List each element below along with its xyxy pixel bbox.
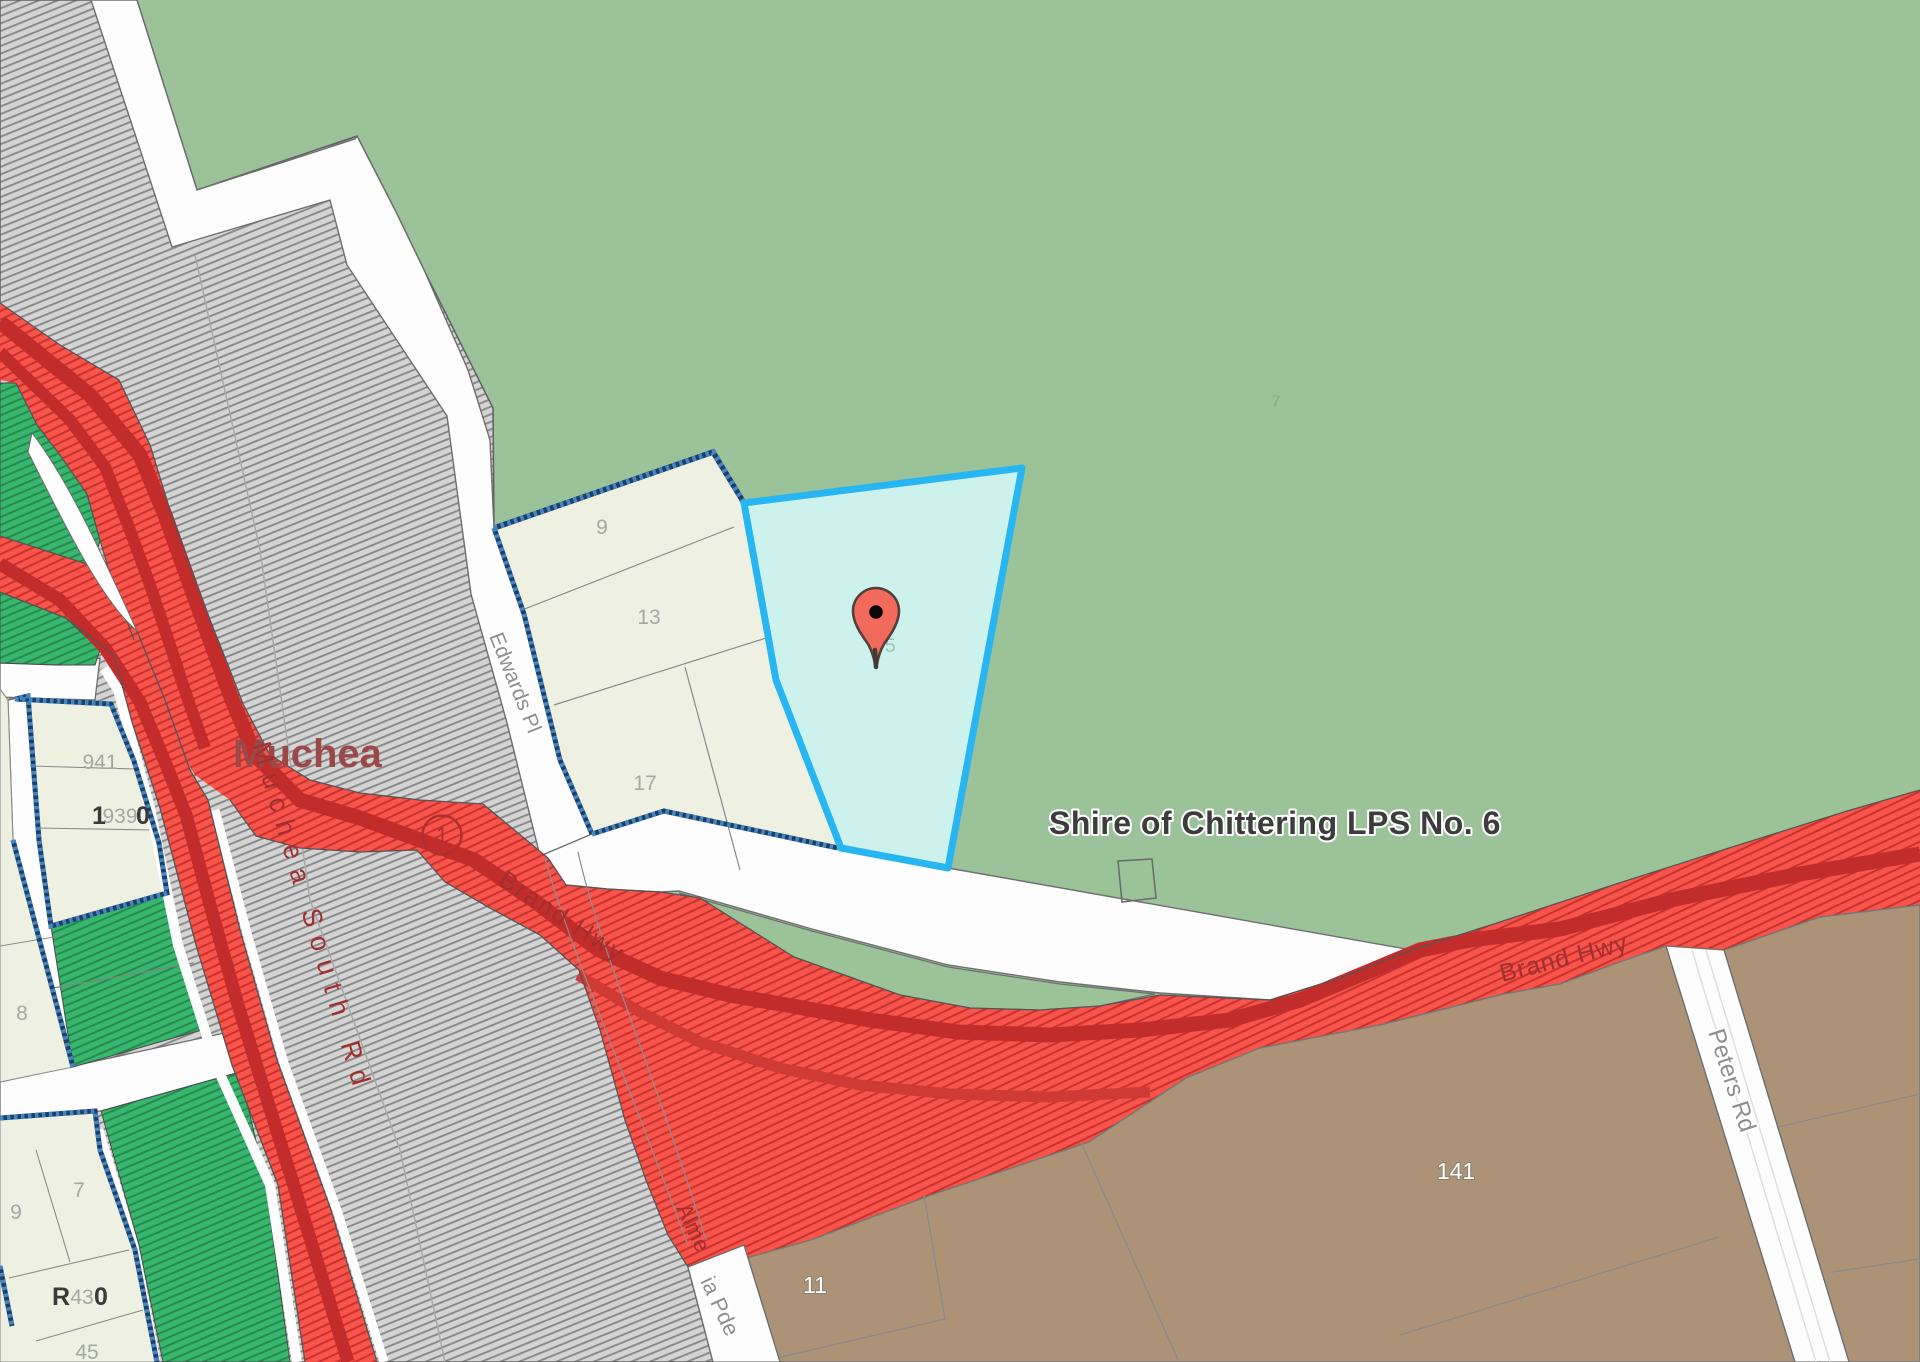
svg-text:8: 8	[16, 1002, 28, 1025]
svg-text:45: 45	[75, 1341, 98, 1362]
svg-text:9: 9	[596, 516, 608, 539]
svg-text:141: 141	[1437, 1158, 1475, 1184]
svg-text:Shire of Chittering LPS No. 6: Shire of Chittering LPS No. 6	[1049, 805, 1501, 841]
svg-text:17: 17	[633, 772, 656, 795]
svg-text:0: 0	[136, 802, 150, 830]
svg-text:43: 43	[70, 1286, 93, 1309]
svg-text:7: 7	[73, 1179, 85, 1202]
svg-text:R: R	[52, 1283, 70, 1311]
svg-text:1: 1	[92, 802, 106, 830]
svg-text:13: 13	[637, 606, 660, 629]
svg-text:7: 7	[1271, 392, 1280, 411]
svg-text:1: 1	[436, 823, 448, 848]
svg-text:9: 9	[10, 1201, 22, 1224]
svg-text:939: 939	[102, 805, 137, 828]
svg-text:941: 941	[82, 751, 117, 774]
svg-text:11: 11	[803, 1272, 827, 1298]
svg-text:0: 0	[94, 1283, 108, 1311]
